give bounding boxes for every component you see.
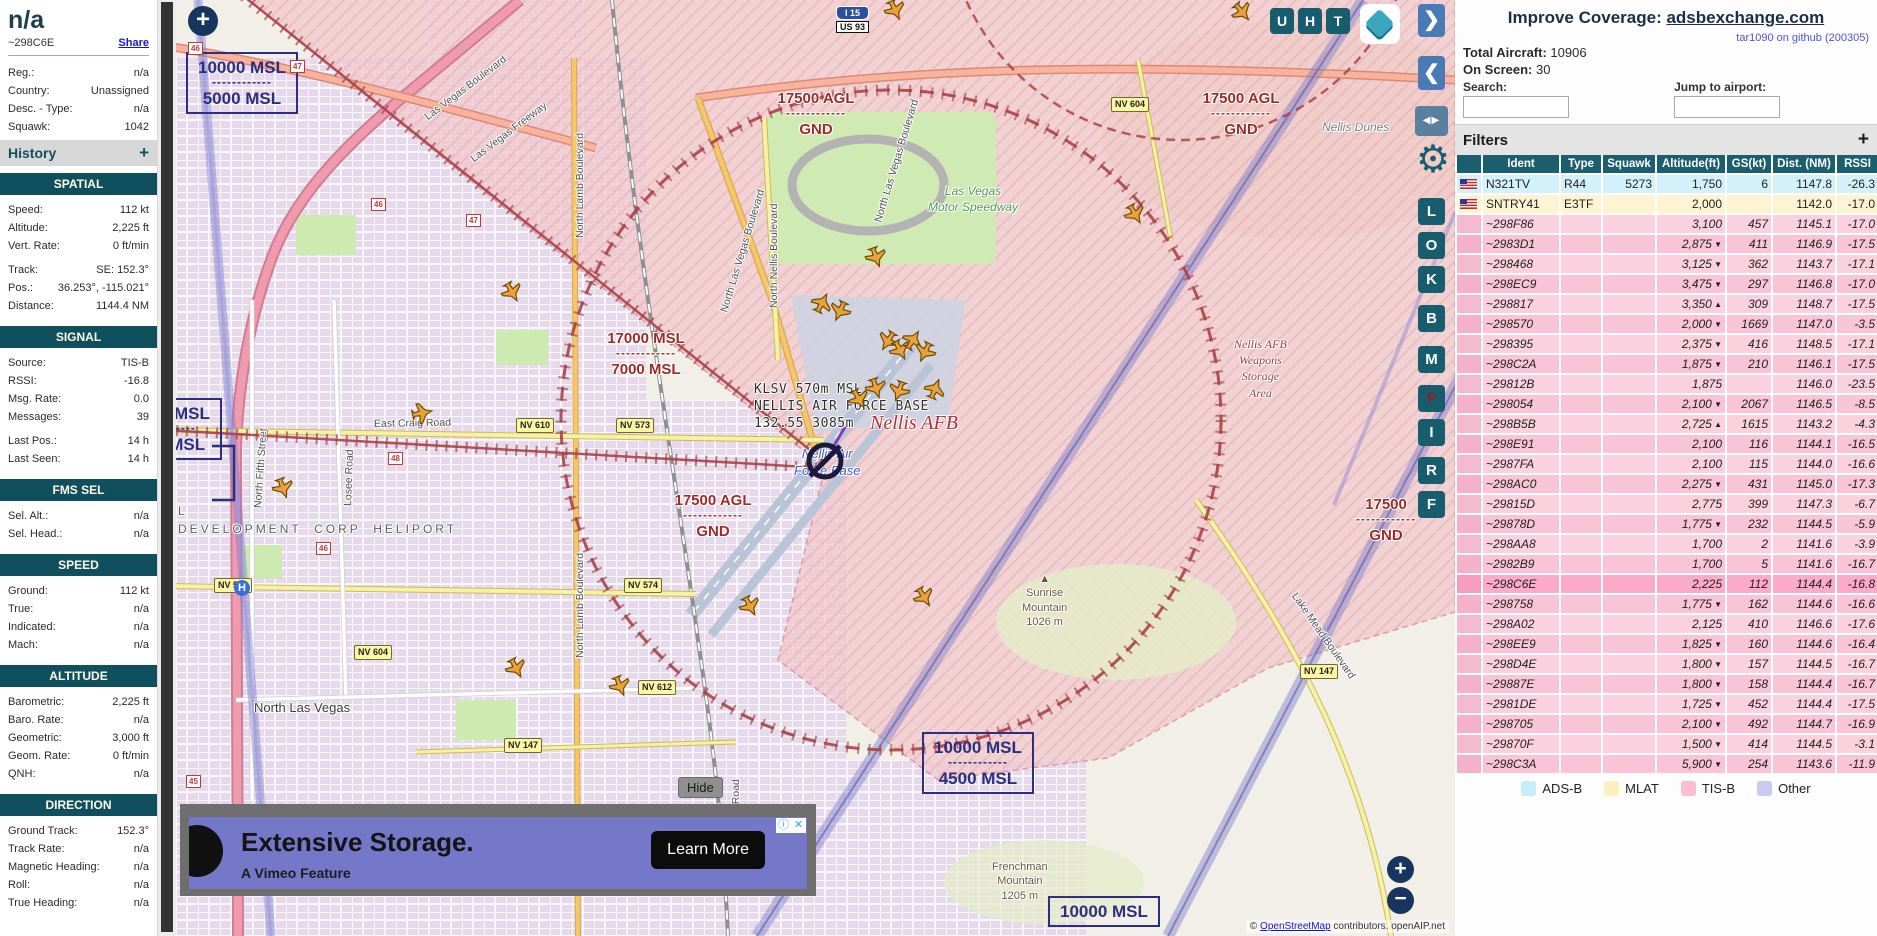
altitude-cell: 1,750 [1656, 174, 1726, 194]
altitude-cell: 2,875 ▼ [1656, 234, 1726, 254]
filters-bar: Filters + [1455, 125, 1877, 155]
squawk-cell [1602, 394, 1656, 414]
column-header-Squawk[interactable]: Squawk [1602, 155, 1656, 174]
dist-cell: 1147.0 [1772, 314, 1836, 334]
descend-arrow-icon: ▼ [1712, 340, 1722, 349]
squawk-cell [1602, 734, 1656, 754]
coverage-title-prefix: Improve Coverage: [1508, 8, 1667, 27]
dist-cell: 1146.5 [1772, 394, 1836, 414]
ident-cell: ~298468 [1482, 254, 1560, 274]
map-button-t[interactable]: T [1326, 8, 1350, 34]
table-row[interactable]: ~298EE91,825 ▼1601144.6-16.4 [1456, 634, 1877, 654]
table-row[interactable]: ~2984683,125 ▼3621143.7-17.1 [1456, 254, 1877, 274]
table-row[interactable]: ~298C3A5,900 ▼2541143.6-11.9 [1456, 754, 1877, 773]
altitude-cell: 2,000 [1656, 194, 1726, 214]
map-button-u[interactable]: U [1270, 8, 1294, 34]
altitude-cell: 3,475 ▼ [1656, 274, 1726, 294]
ident-cell: ~298B5B [1482, 414, 1560, 434]
rssi-cell: -6.7 [1836, 494, 1877, 514]
detail-row-label: Roll: [8, 876, 30, 894]
table-row[interactable]: ~298D4E1,800 ▼1571144.5-16.7 [1456, 654, 1877, 674]
ident-cell: ~2983D1 [1482, 234, 1560, 254]
flag-cell [1456, 194, 1482, 214]
descend-arrow-icon: ▼ [1712, 680, 1722, 689]
msl-altitude-box: 10000 MSL------------5000 MSL [186, 52, 298, 114]
type-cell [1560, 574, 1602, 594]
aircraft-icon[interactable] [407, 398, 438, 429]
descend-arrow-icon: ▼ [1712, 400, 1722, 409]
detail-row-value: n/a [134, 525, 149, 543]
table-row[interactable]: SNTRY41E3TF2,0001142.0-17.0 [1456, 194, 1877, 214]
dist-cell: 1145.0 [1772, 474, 1836, 494]
dist-cell: 1144.5 [1772, 734, 1836, 754]
detail-row-label: Track: [8, 261, 38, 279]
table-row[interactable]: ~298A022,1254101146.6-17.6 [1456, 614, 1877, 634]
agl-bottom: GND [1166, 119, 1316, 140]
table-row[interactable]: ~298E912,1001161144.1-16.5 [1456, 434, 1877, 454]
column-header-flag[interactable] [1456, 155, 1482, 174]
column-header-Altitude(ft)[interactable]: Altitude(ft) [1656, 155, 1726, 174]
route-shield: NV 612 [638, 680, 676, 695]
type-cell [1560, 494, 1602, 514]
map[interactable]: 10000 MSL------------5000 MSL10000 MSL--… [176, 0, 1455, 936]
type-cell [1560, 534, 1602, 554]
detail-row: Magnetic Heading:n/a [8, 858, 149, 876]
descend-arrow-icon: ▼ [1712, 700, 1722, 709]
section-header-altitude: ALTITUDE [0, 665, 157, 687]
type-cell [1560, 654, 1602, 674]
detail-row: True:n/a [8, 600, 149, 618]
gs-cell: 416 [1726, 334, 1772, 354]
flag-cell [1456, 514, 1482, 534]
table-row[interactable]: ~298C6E2,2251121144.4-16.8 [1456, 574, 1877, 594]
flag-cell [1456, 754, 1482, 773]
section-header-spatial: SPATIAL [0, 173, 157, 195]
flag-cell [1456, 694, 1482, 714]
us-flag-icon [1460, 199, 1477, 209]
squawk-cell [1602, 574, 1656, 594]
table-row[interactable]: ~2987581,775 ▼1621144.6-16.6 [1456, 594, 1877, 614]
map-zoom-out-button-bottom[interactable]: − [1387, 887, 1414, 914]
ident-cell: ~298C6E [1482, 574, 1560, 594]
squawk-cell [1602, 474, 1656, 494]
ident-cell: ~29887E [1482, 674, 1560, 694]
map-zoom-in-button-bottom[interactable]: + [1387, 856, 1414, 883]
altitude-cell: 1,700 [1656, 534, 1726, 554]
gs-cell: 115 [1726, 454, 1772, 474]
map-layer-button-i[interactable]: I [1418, 419, 1445, 446]
ident-cell: ~298817 [1482, 294, 1560, 314]
ident-cell: ~298F86 [1482, 214, 1560, 234]
map-layer-button-r[interactable]: R [1418, 457, 1445, 484]
flag-cell [1456, 734, 1482, 754]
detail-row: Altitude:2,225 ft [8, 219, 149, 237]
map-layer-button-b[interactable]: B [1418, 305, 1445, 332]
agl-separator: ------------ [566, 349, 726, 359]
squawk-cell [1602, 374, 1656, 394]
highway-number-marker: 46 [371, 198, 386, 211]
gs-cell: 297 [1726, 274, 1772, 294]
rssi-cell: -16.7 [1836, 654, 1877, 674]
section-group: Speed:112 ktAltitude:2,225 ftVert. Rate:… [0, 199, 157, 259]
squawk-cell [1602, 554, 1656, 574]
detail-row: Mach:n/a [8, 636, 149, 654]
total-aircraft-value: 10906 [1550, 45, 1586, 60]
table-row[interactable]: ~2981DE1,725 ▼4521144.4-17.5 [1456, 694, 1877, 714]
detail-row-value: 1144.4 NM [96, 297, 149, 315]
rssi-cell: -3.1 [1836, 734, 1877, 754]
dist-cell: 1144.7 [1772, 714, 1836, 734]
ident-cell: ~298C3A [1482, 754, 1560, 773]
rssi-cell: -16.8 [1836, 574, 1877, 594]
table-row[interactable]: ~298C2A1,875 ▼2101146.1-17.5 [1456, 354, 1877, 374]
dist-cell: 1144.4 [1772, 674, 1836, 694]
jump-to-airport-input[interactable] [1674, 96, 1780, 118]
gs-cell: 309 [1726, 294, 1772, 314]
map-layer-button-p[interactable]: P [1418, 385, 1445, 412]
map-layer-button-f[interactable]: F [1418, 491, 1445, 518]
squawk-cell [1602, 354, 1656, 374]
type-cell [1560, 694, 1602, 714]
altitude-cell: 1,700 [1656, 554, 1726, 574]
altitude-cell: 1,725 ▼ [1656, 694, 1726, 714]
route-shield: NV 604 [354, 645, 392, 660]
ad-logo [189, 825, 223, 877]
detail-row: Speed:112 kt [8, 201, 149, 219]
descend-arrow-icon: ▼ [1712, 720, 1722, 729]
flag-cell [1456, 554, 1482, 574]
detail-row-value: n/a [134, 711, 149, 729]
legend-swatch [1604, 781, 1619, 796]
agl-bottom: GND [633, 521, 793, 542]
route-shield: NV 573 [616, 418, 654, 433]
descend-arrow-icon: ▼ [1712, 640, 1722, 649]
aircraft-table-header[interactable]: IdentTypeSquawkAltitude(ft)GS(kt)Dist. (… [1456, 155, 1877, 174]
heliport-icon: H [234, 580, 250, 596]
gs-cell: 160 [1726, 634, 1772, 654]
climb-arrow-icon: ▲ [1712, 420, 1722, 429]
detail-row-value: 112 kt [120, 201, 149, 219]
detail-row-value: 2,225 ft [112, 219, 149, 237]
agl-airspace-label: 17500 AGL------------GND [633, 490, 793, 542]
ad-banner: Extensive Storage. A Vimeo Feature Learn… [180, 804, 816, 896]
squawk-cell [1602, 254, 1656, 274]
rssi-cell: -16.7 [1836, 674, 1877, 694]
map-attribution: © OpenStreetMap contributors. openAIP.ne… [1246, 920, 1449, 933]
legend-item-ads-b: ADS-B [1521, 781, 1582, 796]
squawk-cell [1602, 634, 1656, 654]
table-row[interactable]: ~298EC93,475 ▼2971146.8-17.0 [1456, 274, 1877, 294]
detail-row-label: Barometric: [8, 693, 64, 711]
aircraft-basic-info: Reg.:n/aCountry:UnassignedDesc. - Type:n… [0, 58, 157, 140]
table-row[interactable]: ~298AC02,275 ▼4311145.0-17.3 [1456, 474, 1877, 494]
map-layer-button-l[interactable]: L [1418, 198, 1445, 225]
altitude-cell: 1,800 ▼ [1656, 654, 1726, 674]
on-screen-count: On Screen: 30 [1455, 61, 1877, 78]
table-row[interactable]: N321TVR4452731,75061147.8-26.3 [1456, 174, 1877, 194]
squawk-cell [1602, 594, 1656, 614]
table-row[interactable]: ~2982B91,70051141.6-16.7 [1456, 554, 1877, 574]
squawk-cell [1602, 234, 1656, 254]
table-row[interactable]: ~29878D1,775 ▼2321144.5-5.9 [1456, 514, 1877, 534]
altitude-cell: 2,100 ▼ [1656, 714, 1726, 734]
dist-cell: 1143.2 [1772, 414, 1836, 434]
route-shield: NV 147 [504, 738, 542, 753]
type-cell [1560, 314, 1602, 334]
flag-cell [1456, 374, 1482, 394]
map-button-h[interactable]: H [1298, 8, 1322, 34]
detail-row: Last Seen:14 h [8, 450, 149, 468]
detail-row-value: n/a [134, 876, 149, 894]
ad-hide-button[interactable]: Hide [678, 777, 723, 798]
agl-bottom: GND [1341, 525, 1431, 546]
type-cell [1560, 734, 1602, 754]
detail-row-value: n/a [134, 840, 149, 858]
route-shield: NV 610 [516, 418, 554, 433]
altitude-cell: 1,800 ▼ [1656, 674, 1726, 694]
dist-cell: 1144.6 [1772, 594, 1836, 614]
sidebar-scrollbar-thumb[interactable] [161, 2, 173, 932]
layers-icon [1365, 9, 1395, 39]
table-row[interactable]: ~2983D12,875 ▼4111146.9-17.5 [1456, 234, 1877, 254]
ident-cell: ~29878D [1482, 514, 1560, 534]
legend-swatch [1757, 781, 1772, 796]
flag-cell [1456, 634, 1482, 654]
layers-button[interactable] [1360, 4, 1400, 44]
info-row-value: n/a [134, 100, 149, 118]
ident-cell: ~298EC9 [1482, 274, 1560, 294]
msl-line: 10000 MSL [1060, 901, 1148, 922]
detail-row-label: Ground Track: [8, 822, 78, 840]
ident-cell: ~29815D [1482, 494, 1560, 514]
dist-cell: 1144.5 [1772, 654, 1836, 674]
panel-collapse-right-button[interactable]: ❯ [1418, 4, 1445, 37]
dist-cell: 1144.0 [1772, 454, 1836, 474]
filters-add-button[interactable]: + [1858, 129, 1869, 151]
aircraft-info-header: n/a ~298C6E Share [0, 0, 157, 58]
rssi-cell: -5.9 [1836, 514, 1877, 534]
panel-collapse-left-button[interactable]: ❮ [1418, 56, 1445, 90]
table-row[interactable]: ~2987052,100 ▼4921144.7-16.9 [1456, 714, 1877, 734]
ident-cell: ~298EE9 [1482, 634, 1560, 654]
table-row[interactable]: ~29815D2,7753991147.3-6.7 [1456, 494, 1877, 514]
type-cell [1560, 274, 1602, 294]
detail-row-value: 36.253°, -115.021° [58, 279, 149, 297]
table-row[interactable]: ~2983952,375 ▼4161148.5-17.1 [1456, 334, 1877, 354]
flag-cell [1456, 414, 1482, 434]
coverage-title: Improve Coverage: adsbexchange.com [1455, 8, 1877, 28]
map-layer-button-k[interactable]: K [1418, 266, 1445, 293]
ident-cell: ~298E91 [1482, 434, 1560, 454]
altitude-cell: 2,275 ▼ [1656, 474, 1726, 494]
flag-cell [1456, 274, 1482, 294]
msl-line: 5000 MSL [198, 88, 286, 109]
detail-row: Ground Track:152.3° [8, 822, 149, 840]
ident-cell: ~298758 [1482, 594, 1560, 614]
rssi-cell: -17.5 [1836, 294, 1877, 314]
info-row-label: Squawk: [8, 118, 50, 136]
column-header-GS(kt)[interactable]: GS(kt) [1726, 155, 1772, 174]
ad-close-icon[interactable]: ✕ [791, 818, 806, 833]
ident-cell: ~298D4E [1482, 654, 1560, 674]
detail-row: Sel. Alt.:n/a [8, 507, 149, 525]
history-bar: History + [0, 140, 157, 166]
gs-cell: 452 [1726, 694, 1772, 714]
ident-cell: ~298054 [1482, 394, 1560, 414]
table-row[interactable]: ~29812B1,8751146.0-23.5 [1456, 374, 1877, 394]
history-expand-button[interactable]: + [139, 143, 149, 163]
squawk-cell [1602, 454, 1656, 474]
gs-cell: 162 [1726, 594, 1772, 614]
share-link[interactable]: Share [118, 37, 149, 49]
map-layer-button-o[interactable]: O [1418, 232, 1445, 259]
detail-row: Source:TIS-B [8, 354, 149, 372]
gs-cell: 1669 [1726, 314, 1772, 334]
detail-row: Messages:39 [8, 408, 149, 426]
ad-cta-button[interactable]: Learn More [651, 831, 765, 869]
map-zoom-in-button[interactable]: + [188, 6, 218, 36]
ident-cell: ~2982B9 [1482, 554, 1560, 574]
table-row[interactable]: ~298B5B2,725 ▲16151143.2-4.3 [1456, 414, 1877, 434]
detail-row: Baro. Rate:n/a [8, 711, 149, 729]
gs-cell: 210 [1726, 354, 1772, 374]
altitude-cell: 3,100 [1656, 214, 1726, 234]
ident-cell: ~298AC0 [1482, 474, 1560, 494]
flag-cell [1456, 674, 1482, 694]
altitude-cell: 1,500 ▼ [1656, 734, 1726, 754]
ident-cell: ~2981DE [1482, 694, 1560, 714]
squawk-cell [1602, 754, 1656, 773]
total-aircraft-count: Total Aircraft: 10906 [1455, 44, 1877, 61]
dist-cell: 1141.6 [1772, 554, 1836, 574]
detail-row-label: Pos.: [8, 279, 33, 297]
rssi-cell: -17.5 [1836, 354, 1877, 374]
detail-row: Ground:112 kt [8, 582, 149, 600]
sidebar-scrollbar[interactable] [157, 0, 177, 936]
altitude-cell: 2,100 [1656, 434, 1726, 454]
detail-row-value: TIS-B [121, 354, 149, 372]
gs-cell: 411 [1726, 234, 1772, 254]
flag-cell [1456, 174, 1482, 194]
table-row[interactable]: ~2987FA2,1001151144.0-16.6 [1456, 454, 1877, 474]
table-row[interactable]: ~2985702,000 ▼16691147.0-3.5 [1456, 314, 1877, 334]
rssi-cell: -17.0 [1836, 214, 1877, 234]
detail-row-label: Vert. Rate: [8, 237, 60, 255]
search-label: Search: [1463, 80, 1658, 94]
descend-arrow-icon: ▼ [1712, 240, 1722, 249]
detail-row: Msg. Rate:0.0 [8, 390, 149, 408]
flag-cell [1456, 354, 1482, 374]
detail-row-label: Geom. Rate: [8, 747, 70, 765]
table-row[interactable]: ~29870F1,500 ▼4141144.5-3.1 [1456, 734, 1877, 754]
descend-arrow-icon: ▼ [1712, 480, 1722, 489]
agl-airspace-label: 17500 AGL------------GND [736, 88, 896, 140]
descend-arrow-icon: ▼ [1712, 360, 1722, 369]
detail-row-label: RSSI: [8, 372, 37, 390]
detail-row-value: n/a [134, 765, 149, 783]
column-header-Dist. (NM)[interactable]: Dist. (NM) [1772, 155, 1836, 174]
rssi-cell: -17.1 [1836, 254, 1877, 274]
highway-number-marker: 47 [466, 214, 481, 227]
detail-row-value: 0 ft/min [113, 237, 149, 255]
legend-item-other: Other [1757, 781, 1811, 796]
gs-cell: 431 [1726, 474, 1772, 494]
dist-cell: 1144.6 [1772, 634, 1836, 654]
table-row[interactable]: ~2988173,350 ▲3091148.7-17.5 [1456, 294, 1877, 314]
detail-row-value: n/a [134, 894, 149, 912]
squawk-cell [1602, 434, 1656, 454]
squawk-cell [1602, 194, 1656, 214]
gs-cell: 457 [1726, 214, 1772, 234]
openstreetmap-link[interactable]: OpenStreetMap [1260, 921, 1331, 932]
info-row: Desc. - Type:n/a [8, 100, 149, 118]
info-row-value: n/a [134, 64, 149, 82]
detail-row: RSSI:-16.8 [8, 372, 149, 390]
rssi-cell: -16.6 [1836, 454, 1877, 474]
detail-row-label: Geometric: [8, 729, 62, 747]
search-input[interactable] [1463, 96, 1569, 118]
table-row[interactable]: ~2980542,100 ▼20671146.5-8.5 [1456, 394, 1877, 414]
split-view-button[interactable]: ◀▶ [1415, 106, 1448, 136]
type-cell [1560, 454, 1602, 474]
rssi-cell: -8.5 [1836, 394, 1877, 414]
type-cell: R44 [1560, 174, 1602, 194]
descend-arrow-icon: ▼ [1712, 660, 1722, 669]
type-cell [1560, 474, 1602, 494]
info-row-value: Unassigned [91, 82, 149, 100]
table-row[interactable]: ~298AA81,70021141.6-3.9 [1456, 534, 1877, 554]
dist-cell: 1146.0 [1772, 374, 1836, 394]
table-row[interactable]: ~298F863,1004571145.1-17.0 [1456, 214, 1877, 234]
map-layer-button-m[interactable]: M [1418, 346, 1445, 373]
detail-row: Indicated:n/a [8, 618, 149, 636]
rssi-cell: -16.4 [1836, 634, 1877, 654]
type-cell [1560, 514, 1602, 534]
gs-cell: 5 [1726, 554, 1772, 574]
detail-row-value: -16.8 [124, 372, 149, 390]
column-header-RSSI[interactable]: RSSI [1836, 155, 1877, 174]
detail-row-value: n/a [134, 600, 149, 618]
detail-row: Last Pos.:14 h [8, 432, 149, 450]
altitude-cell: 2,100 ▼ [1656, 394, 1726, 414]
squawk-cell [1602, 494, 1656, 514]
flag-cell [1456, 714, 1482, 734]
settings-gear-button[interactable]: ⚙ [1416, 142, 1450, 178]
ident-cell: ~298395 [1482, 334, 1560, 354]
rssi-cell: -4.3 [1836, 414, 1877, 434]
gs-cell: 414 [1726, 734, 1772, 754]
agl-bottom: GND [736, 119, 896, 140]
gs-cell: 1615 [1726, 414, 1772, 434]
ad-info-icon[interactable]: ⓘ [776, 818, 791, 833]
detail-row-label: Source: [8, 354, 46, 372]
altitude-cell: 2,225 [1656, 574, 1726, 594]
adsbexchange-link[interactable]: adsbexchange.com [1666, 8, 1824, 27]
us-flag-icon [1460, 179, 1477, 189]
squawk-cell [1602, 694, 1656, 714]
tar1090-github-link[interactable]: tar1090 on github (200305) [1455, 32, 1877, 44]
column-header-Ident[interactable]: Ident [1482, 155, 1560, 174]
section-group: Ground:112 ktTrue:n/aIndicated:n/aMach:n… [0, 580, 157, 658]
msl-separator: ------------ [934, 758, 1022, 768]
gs-cell: 158 [1726, 674, 1772, 694]
selected-aircraft-marker[interactable] [797, 433, 853, 489]
table-row[interactable]: ~29887E1,800 ▼1581144.4-16.7 [1456, 674, 1877, 694]
type-cell [1560, 294, 1602, 314]
detail-row-value: 2,225 ft [112, 693, 149, 711]
type-cell [1560, 634, 1602, 654]
column-header-Type[interactable]: Type [1560, 155, 1602, 174]
